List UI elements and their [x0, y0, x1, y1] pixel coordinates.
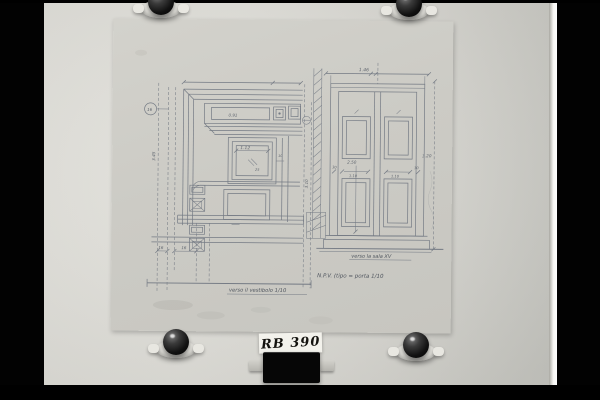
plinth [316, 235, 443, 252]
film-strip-holder [263, 352, 320, 383]
catalog-label: RB 390 [259, 332, 322, 353]
board-edge-highlight [549, 3, 557, 385]
door-centre-panel: 1.12 25 10 [228, 138, 284, 184]
pin-tab [426, 6, 437, 15]
film-holder-tab-right [320, 360, 334, 371]
archival-photograph: 16 3.45 0.91 [0, 0, 600, 400]
architrave-frame [183, 89, 303, 226]
left-dimension-chain: 16 3.45 [143, 83, 176, 291]
magnet-pin-top-right [386, 0, 432, 24]
frieze-dim: 0.91 [229, 113, 238, 118]
catalog-number: RB 390 [260, 334, 320, 352]
chain-dim: 3.45 [151, 151, 156, 161]
upper-door-panels [342, 110, 412, 160]
pin-highlight [170, 334, 175, 338]
detail-mark-number: 16 [147, 107, 153, 112]
tick-dim: 10 [278, 154, 283, 158]
letterbox-bar-bottom [0, 385, 600, 400]
left-door-frame-detail: 16 3.45 0.91 [143, 80, 313, 295]
magnet-pin-icon [163, 329, 189, 355]
frieze-panel: 0.91 [204, 103, 310, 124]
stile-right-dim: 30 [414, 166, 419, 170]
pin-tab [133, 4, 144, 13]
right-drawing-caption: verso la sala XV [351, 254, 392, 260]
architectural-sketch: 16 3.45 0.91 [111, 19, 454, 334]
right-door-elevation: 1.46 3.20 [306, 62, 445, 280]
height-dim: 3.10 [304, 179, 309, 188]
magnet-pin-bottom-right [393, 333, 439, 365]
jamb-dim-b: 16 [181, 245, 187, 250]
double-door-frame [329, 83, 424, 236]
pin-tab [381, 6, 392, 15]
film-holder-tab-left [249, 360, 263, 371]
lower-door-panels [342, 179, 412, 228]
pin-tab [178, 4, 189, 13]
magnet-pin-icon [403, 332, 429, 358]
stile-left-dim: 30 [332, 165, 337, 169]
panel-left-dim: 1.10 [349, 174, 358, 178]
leaf-height-dim: 2.50 [347, 160, 357, 165]
panel-right-dim: 1.10 [391, 174, 400, 178]
magnet-pin-bottom-left [153, 330, 199, 362]
magnet-pin-top-left [138, 0, 184, 22]
wall-section-hatching [306, 68, 326, 238]
left-drawing-caption: verso il vestibolo 1/10 [229, 288, 287, 295]
molding-note: 25 [255, 168, 260, 172]
drawing-sheet: 16 3.45 0.91 [111, 19, 454, 334]
pin-tab [148, 344, 159, 353]
right-drawing-note: N.P.V. (tipo = porta 1/10 [317, 273, 384, 280]
overall-width-dim: 1.46 [359, 67, 369, 73]
pin-tab [193, 344, 204, 353]
pin-tab [388, 347, 399, 356]
overall-height-dim: 3.20 [422, 153, 432, 158]
pin-highlight [410, 337, 415, 341]
pin-tab [433, 347, 444, 356]
jamb-rosette-panels [189, 185, 205, 251]
panel-width-dim: 1.12 [240, 145, 250, 151]
jamb-dim-a: 16 [158, 245, 164, 250]
